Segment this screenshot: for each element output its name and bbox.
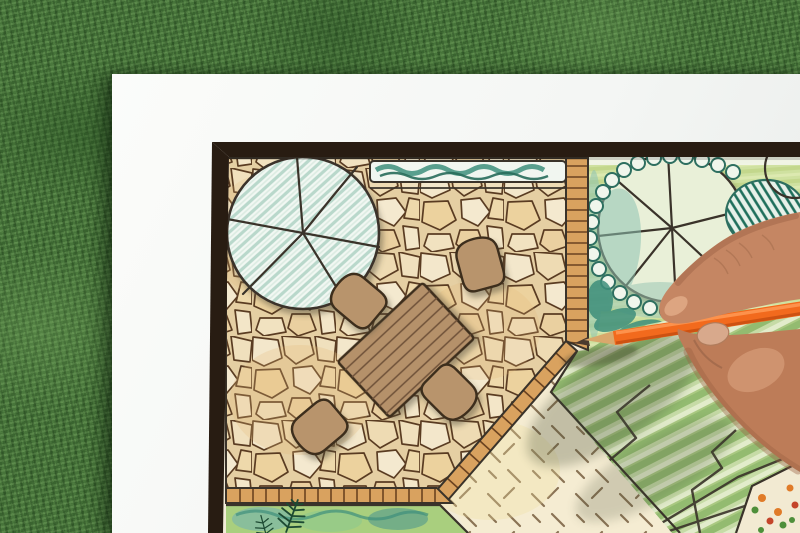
photo-stage: [0, 0, 800, 533]
tile-edge-vertical: [566, 158, 588, 350]
tile-edge-bottom: [226, 488, 452, 503]
plan-photo-svg: [0, 0, 800, 533]
